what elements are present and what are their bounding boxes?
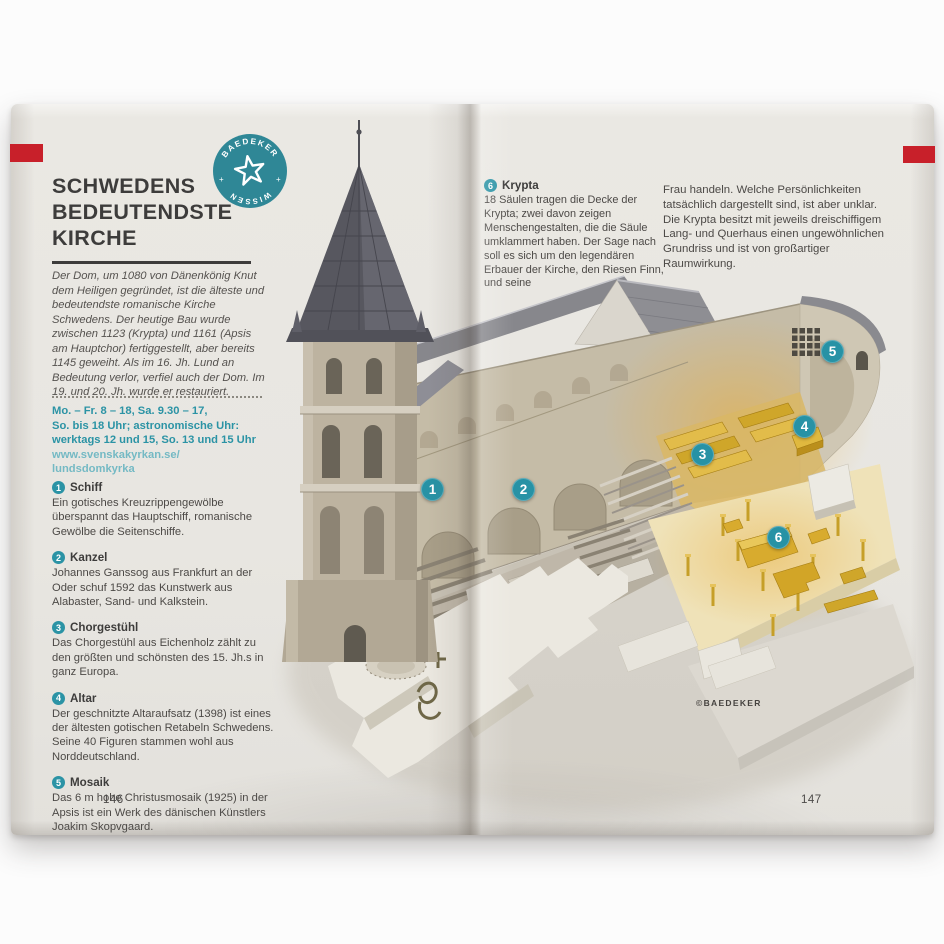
illustration-marker-2: 2 [512,478,535,501]
title-line: BEDEUTENDSTE [52,199,282,225]
item-number-chip: 1 [52,481,65,494]
item-number-chip: 3 [52,621,65,634]
item-text: 18 Säulen tragen die Decke der Krypta; z… [484,194,664,291]
title-rule [52,261,251,264]
illustration-marker-4: 4 [793,415,816,438]
item-number-chip: 2 [52,551,65,564]
website-url: www.svenskakyrkan.se/ [52,448,277,463]
item-text: Ein gotisches Kreuzrippengewölbe überspa… [52,496,276,539]
legend-item-chorgestuehl: 3 Chorgestühl Das Chorgestühl aus Eichen… [52,621,276,679]
title-line: KIRCHE [52,225,282,251]
legend-list: 1 Schiff Ein gotisches Kreuzrippengewölb… [52,481,276,847]
item-title: Kanzel [70,551,107,564]
legend-item-altar: 4 Altar Der geschnitzte Altaraufsatz (13… [52,692,276,765]
illustration-marker-1: 1 [421,478,444,501]
hours-line: So. bis 18 Uhr; astronomische Uhr: [52,419,277,434]
illustration-marker-5: 5 [821,340,844,363]
book-photo: BAEDEKER WISSEN + + SCHWEDENS BEDEUTENDS… [0,0,944,944]
intro-paragraph: Der Dom, um 1080 von Dänenkönig Knut dem… [52,269,268,400]
opening-hours: Mo. – Fr. 8 – 18, Sa. 9.30 – 17, So. bis… [52,404,277,477]
item-text: Das Chorgestühl aus Eichenholz zählt zu … [52,636,276,679]
legend-item-mosaik: 5 Mosaik Das 6 m hohe Christusmosaik (19… [52,776,276,834]
item-number-chip: 4 [52,692,65,705]
baedeker-credit: ©BAEDEKER [696,698,762,708]
page-title: SCHWEDENS BEDEUTENDSTE KIRCHE [52,173,282,251]
item-number-chip: 6 [484,179,497,192]
item-text: Johannes Ganssog aus Frankfurt an der Od… [52,566,276,609]
hours-line: Mo. – Fr. 8 – 18, Sa. 9.30 – 17, [52,404,277,419]
title-line: SCHWEDENS [52,173,282,199]
item-title: Mosaik [70,776,109,789]
item-title: Chorgestühl [70,621,138,634]
hours-line: werktags 12 und 15, So. 13 und 15 Uhr [52,433,277,448]
red-index-tab-left [10,144,43,162]
dotted-divider [52,396,262,398]
page-number-left: 146 [103,794,124,806]
item-title: Krypta [502,179,539,192]
item-title: Altar [70,692,96,705]
page-number-right: 147 [801,794,822,806]
legend-item-schiff: 1 Schiff Ein gotisches Kreuzrippengewölb… [52,481,276,539]
illustration-marker-3: 3 [691,443,714,466]
legend-item-krypta: 6 Krypta 18 Säulen tragen die Decke der … [484,179,664,291]
item-title: Schiff [70,481,102,494]
item-text: Das 6 m hohe Christusmosaik (1925) in de… [52,791,276,834]
item-number-chip: 5 [52,776,65,789]
krypta-continuation-text: Frau handeln. Welche Persönlichkeiten ta… [663,183,895,272]
red-index-tab-right [903,146,935,163]
website-url: lundsdomkyrka [52,462,277,477]
legend-item-kanzel: 2 Kanzel Johannes Ganssog aus Frankfurt … [52,551,276,609]
item-text: Der geschnitzte Altaraufsatz (1398) ist … [52,707,276,765]
illustration-marker-6: 6 [767,526,790,549]
